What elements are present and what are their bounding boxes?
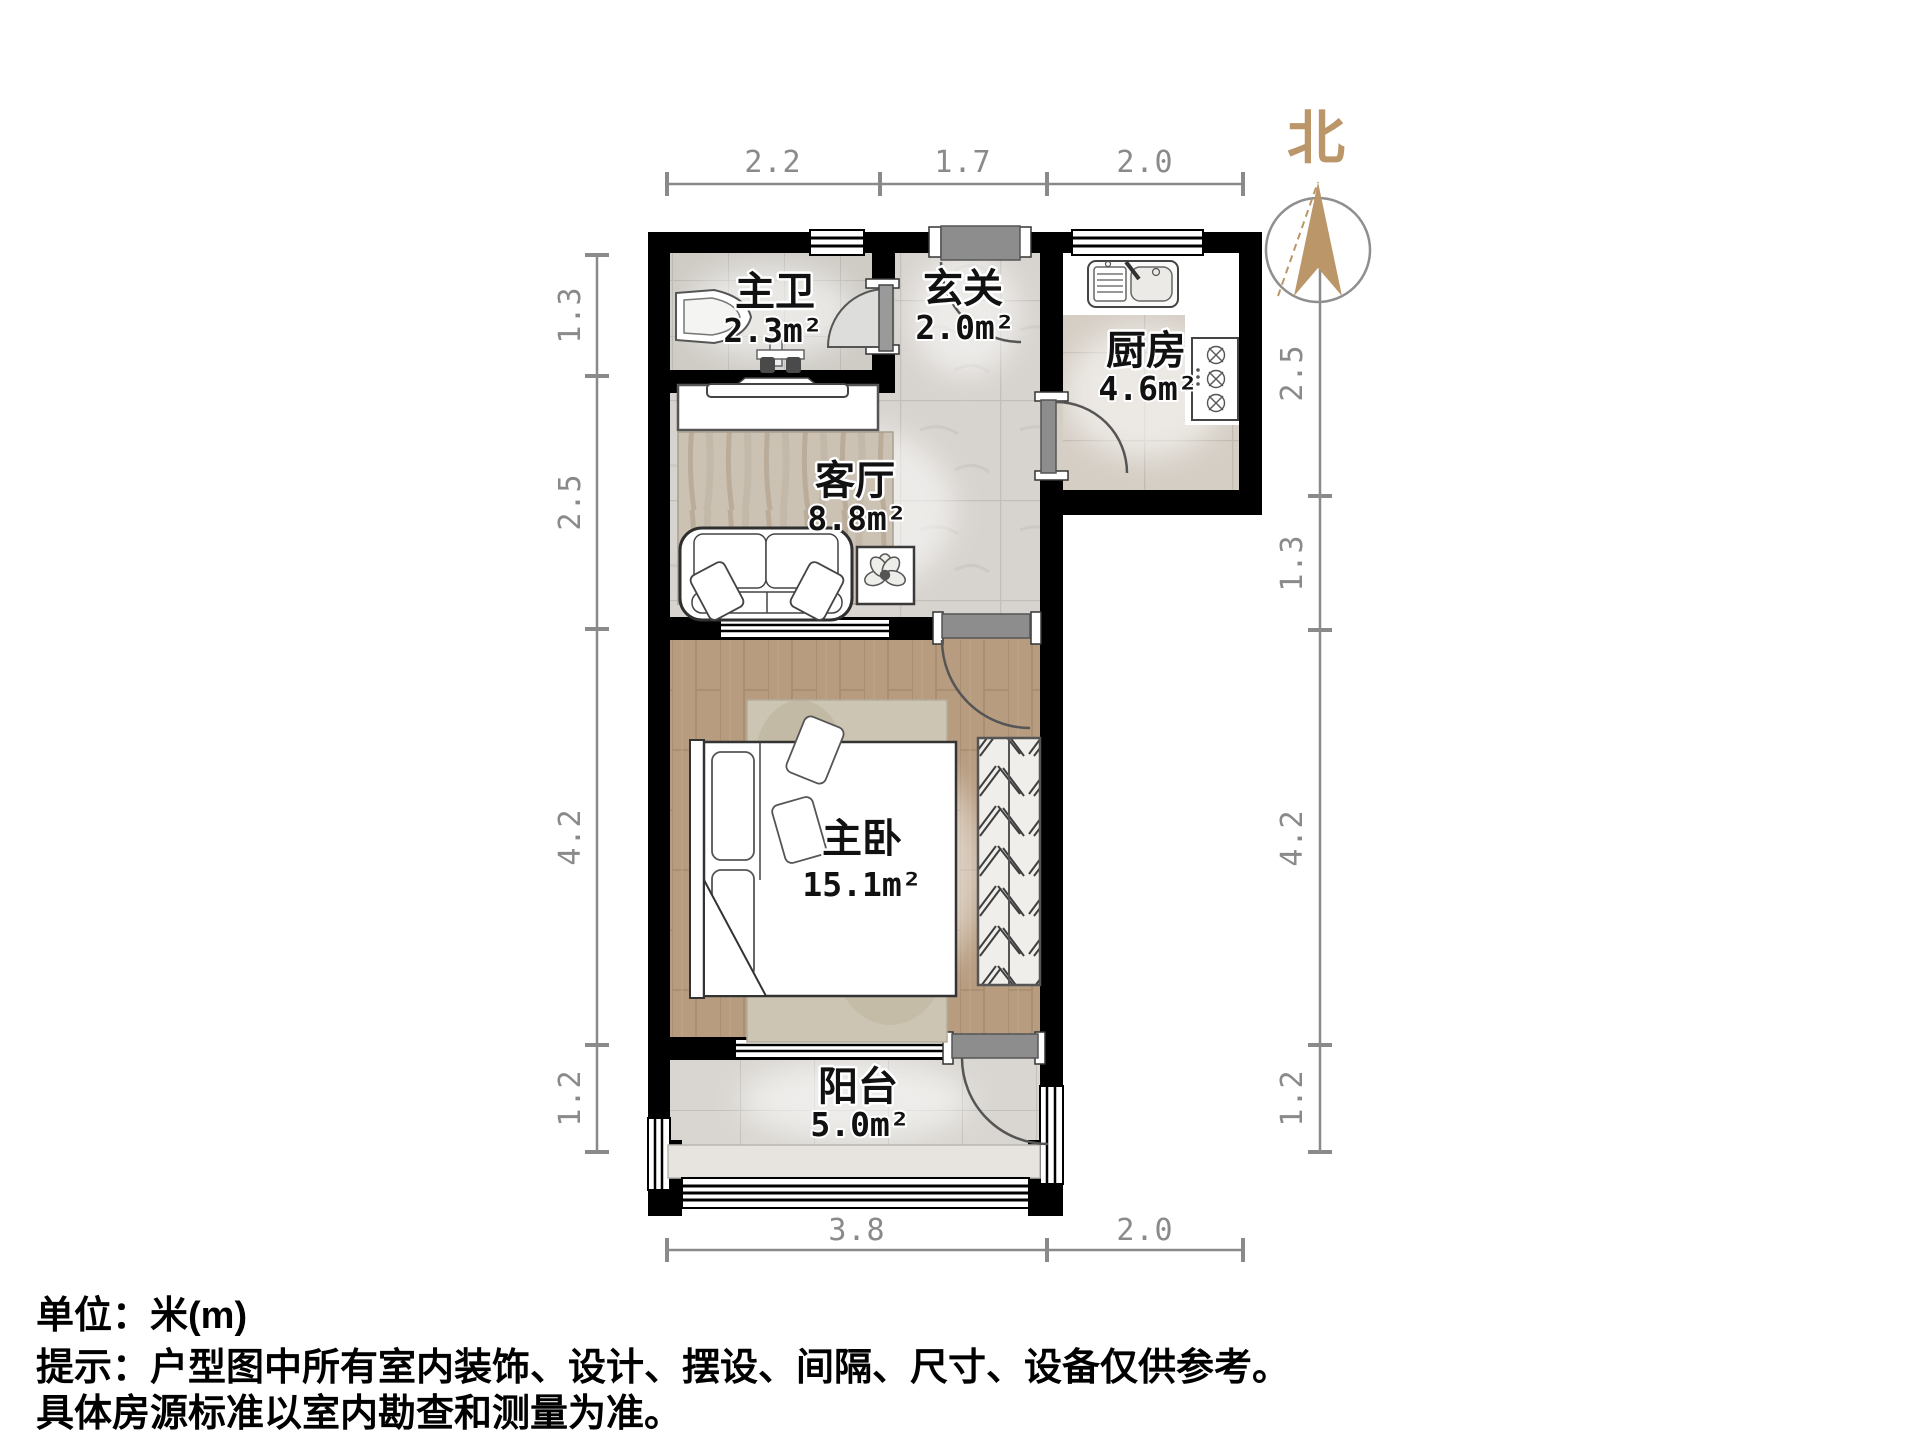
dim-top-2: 1.7 bbox=[934, 145, 991, 180]
pillow-icon bbox=[712, 752, 754, 860]
dim-left-4: 1.2 bbox=[553, 1069, 588, 1126]
stove-icon bbox=[1192, 338, 1238, 420]
dim-left-1: 1.3 bbox=[553, 286, 588, 343]
balcony-front-window bbox=[668, 1145, 1040, 1208]
tv-console bbox=[678, 378, 878, 430]
bedroom-living-window bbox=[720, 619, 890, 638]
dim-left-3: 4.2 bbox=[553, 808, 588, 865]
bathroom-label: 主卫 bbox=[735, 270, 815, 314]
wall-kitchen-right bbox=[1239, 232, 1262, 515]
sofa-icon bbox=[680, 528, 852, 622]
bathroom-window bbox=[810, 230, 864, 255]
bedroom-label: 主卧 bbox=[822, 817, 902, 861]
living-label: 客厅 bbox=[815, 459, 895, 503]
footer-notes: 单位：米(m) 提示：户型图中所有室内装饰、设计、摆设、间隔、尺寸、设备仅供参考… bbox=[36, 1295, 1290, 1434]
dim-left-2: 2.5 bbox=[553, 473, 588, 530]
kitchen-sink-icon bbox=[1088, 261, 1178, 307]
dimension-left bbox=[585, 255, 609, 1152]
side-table-plant-icon bbox=[857, 547, 914, 604]
dim-right-4: 1.2 bbox=[1275, 1069, 1310, 1126]
dim-right-3: 4.2 bbox=[1275, 809, 1310, 866]
balcony-area: 5.0m² bbox=[810, 1105, 909, 1144]
dim-top-1: 2.2 bbox=[744, 145, 801, 180]
floorplan-canvas: 2.2 1.7 2.0 3.8 2.0 1.3 2.5 4.2 1.2 2.5 … bbox=[0, 0, 1912, 1434]
balcony-label: 阳台 bbox=[818, 1065, 898, 1109]
balcony-left-window bbox=[648, 1118, 670, 1190]
wall-kitchen-bottom bbox=[1063, 490, 1262, 515]
unit-note: 单位：米(m) bbox=[36, 1295, 247, 1337]
kitchen-label: 厨房 bbox=[1106, 329, 1186, 373]
hint-note-line1: 提示：户型图中所有室内装饰、设计、摆设、间隔、尺寸、设备仅供参考。 bbox=[36, 1346, 1290, 1389]
dim-top-3: 2.0 bbox=[1116, 145, 1173, 180]
floorplan-page: 2.2 1.7 2.0 3.8 2.0 1.3 2.5 4.2 1.2 2.5 … bbox=[0, 0, 1912, 1434]
entry-area: 2.0m² bbox=[915, 308, 1014, 347]
dimension-right bbox=[1308, 266, 1332, 1152]
north-indicator: 北 bbox=[1266, 106, 1370, 302]
balcony-right-window bbox=[1040, 1086, 1063, 1184]
tv-icon bbox=[707, 384, 848, 397]
kitchen-window bbox=[1072, 230, 1203, 255]
north-label: 北 bbox=[1287, 106, 1345, 171]
entry-label: 玄关 bbox=[923, 267, 1003, 311]
bedroom-area: 15.1m² bbox=[802, 865, 921, 904]
kitchen-area: 4.6m² bbox=[1098, 369, 1197, 408]
wardrobe-icon bbox=[978, 738, 1040, 985]
north-arrow-icon bbox=[1294, 182, 1342, 296]
dim-right-2: 1.3 bbox=[1275, 534, 1310, 591]
hint-note-line2: 具体房源标准以室内勘查和测量为准。 bbox=[36, 1392, 682, 1434]
dim-right-1: 2.5 bbox=[1275, 344, 1310, 401]
living-area: 8.8m² bbox=[807, 499, 906, 538]
dim-bottom-2: 2.0 bbox=[1116, 1213, 1173, 1248]
bathroom-area: 2.3m² bbox=[723, 311, 822, 350]
dim-bottom-1: 3.8 bbox=[828, 1213, 885, 1248]
